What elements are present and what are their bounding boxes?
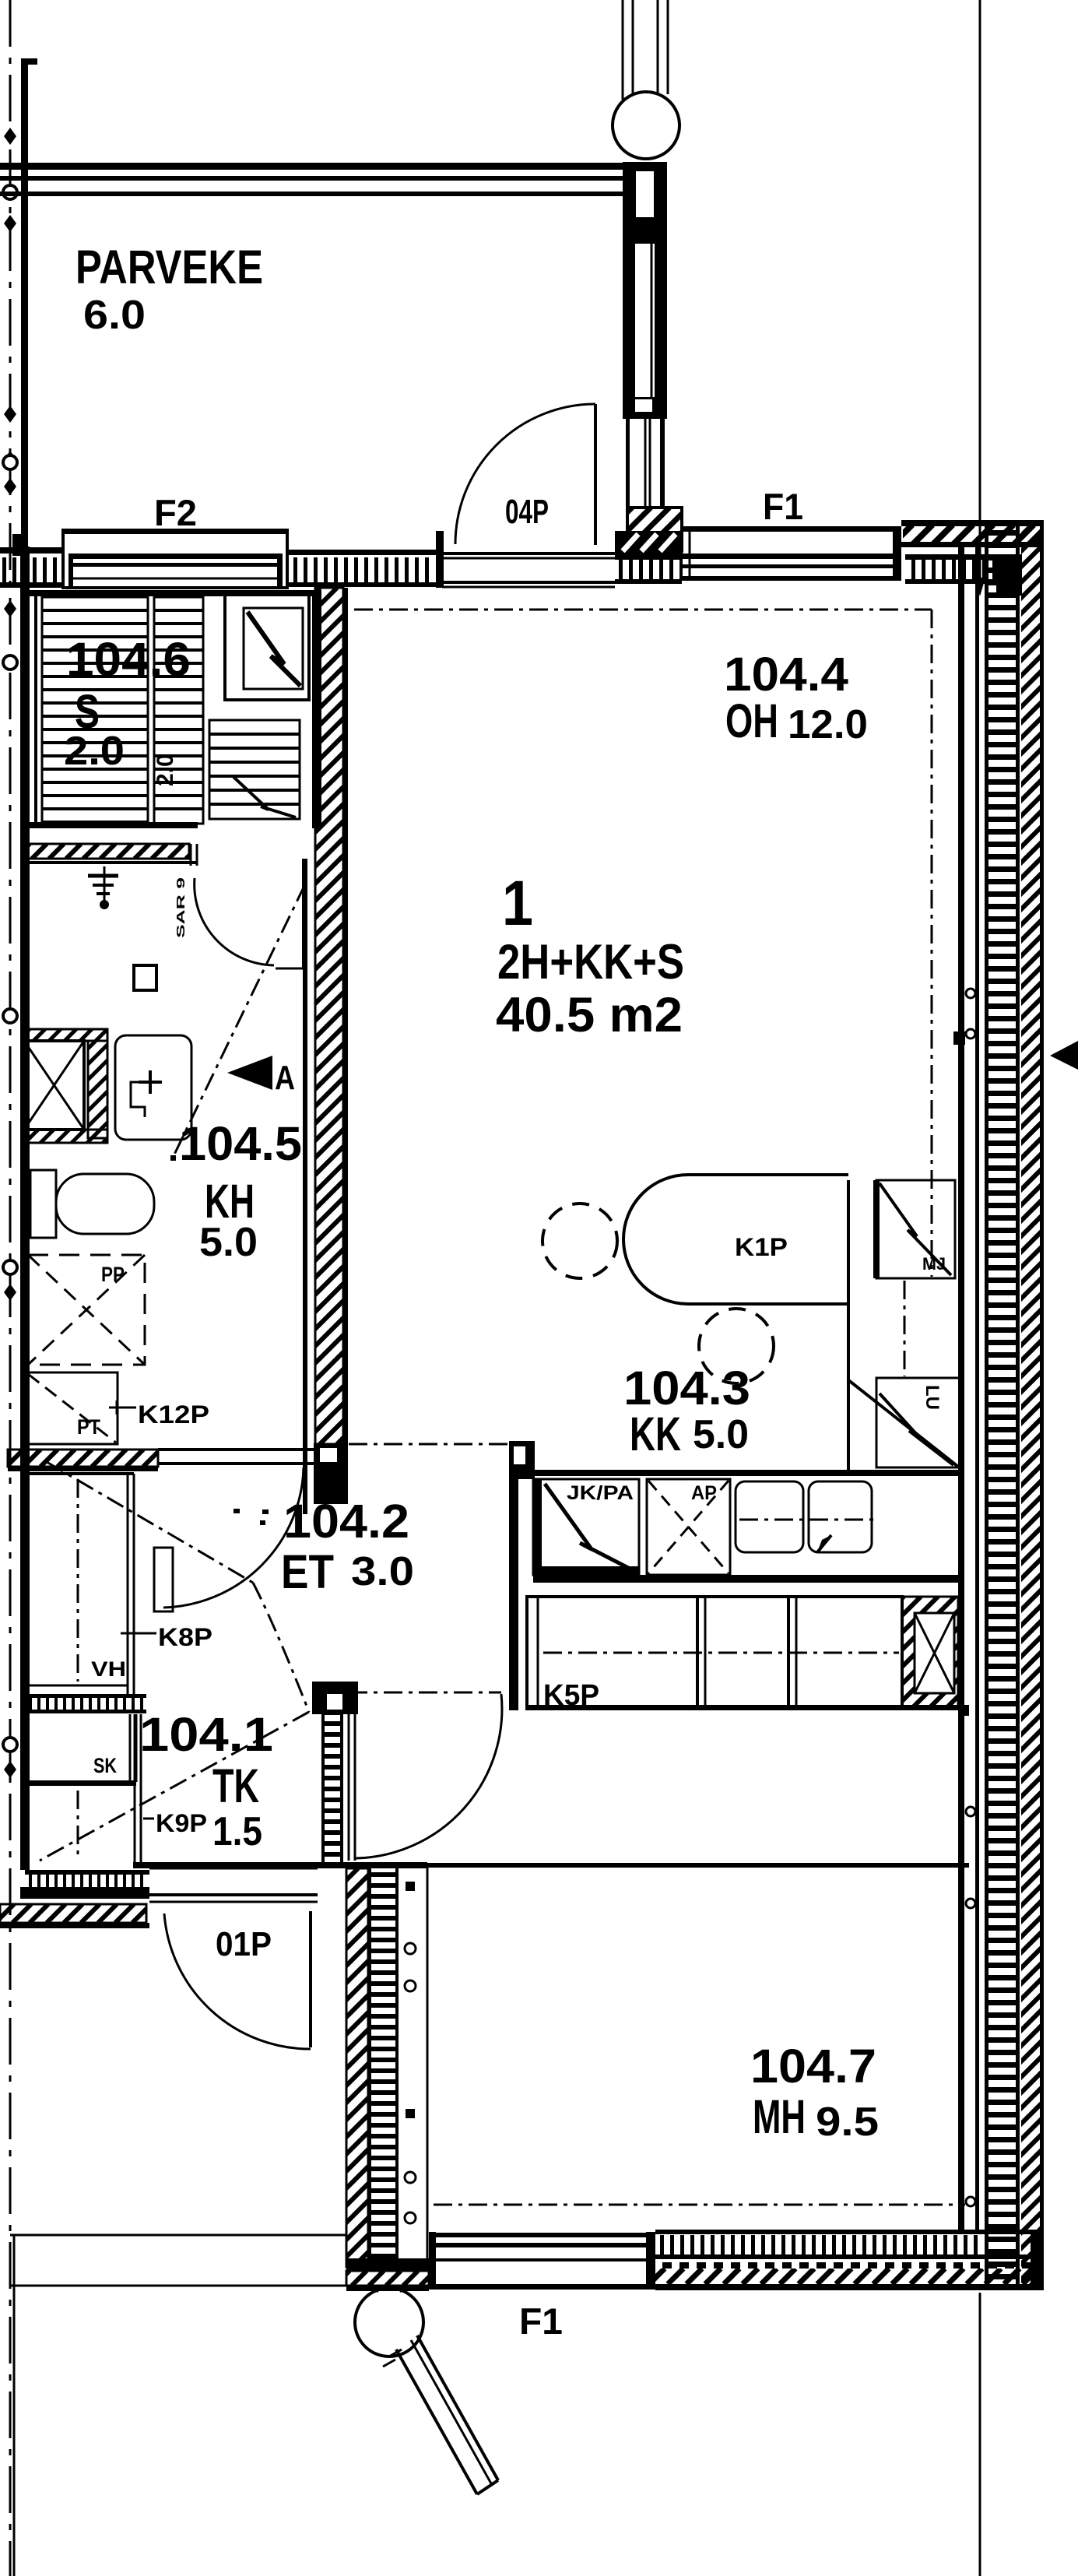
svg-text:MH: MH (753, 2090, 806, 2143)
svg-text:40.5 m2: 40.5 m2 (496, 988, 683, 1042)
svg-text:1.5: 1.5 (212, 1809, 262, 1854)
svg-text:K1P: K1P (735, 1233, 788, 1261)
svg-text:5.0: 5.0 (199, 1220, 258, 1265)
svg-text:ET: ET (281, 1545, 334, 1598)
svg-text:104.1: 104.1 (139, 1708, 273, 1761)
svg-text:SAR 9: SAR 9 (174, 877, 188, 938)
svg-text:104.4: 104.4 (724, 648, 848, 701)
svg-text:F1: F1 (763, 486, 803, 527)
svg-text:104.3: 104.3 (623, 1362, 750, 1415)
svg-text:F1: F1 (519, 2300, 563, 2342)
svg-text:5.0: 5.0 (693, 1412, 749, 1457)
svg-text:AP: AP (691, 1482, 717, 1504)
svg-text:9.5: 9.5 (816, 2100, 879, 2145)
svg-text:1: 1 (502, 868, 533, 939)
svg-text:TK: TK (212, 1759, 259, 1812)
svg-text:KK: KK (630, 1407, 681, 1460)
svg-text:2.0: 2.0 (153, 754, 178, 786)
svg-text:01P: 01P (216, 1925, 272, 1963)
svg-text:A: A (275, 1059, 295, 1097)
svg-text:LU: LU (922, 1385, 943, 1410)
svg-text:K12P: K12P (138, 1400, 209, 1429)
svg-text:104.5: 104.5 (179, 1117, 302, 1170)
svg-text:F2: F2 (154, 492, 197, 533)
svg-text:PP: PP (101, 1263, 125, 1286)
svg-text:12.0: 12.0 (788, 702, 868, 747)
svg-text:SK: SK (93, 1754, 117, 1777)
svg-text:VH: VH (91, 1657, 126, 1681)
svg-text:3.0: 3.0 (351, 1549, 414, 1594)
svg-text:JK/PA: JK/PA (567, 1482, 634, 1504)
svg-text:K8P: K8P (158, 1623, 212, 1651)
svg-text:104.7: 104.7 (750, 2040, 876, 2093)
svg-text:2H+KK+S: 2H+KK+S (497, 935, 684, 989)
svg-text:2.0: 2.0 (64, 729, 125, 774)
svg-text:OH: OH (725, 694, 778, 747)
svg-text:104.6: 104.6 (66, 633, 191, 686)
svg-text:PARVEKE: PARVEKE (75, 241, 263, 293)
svg-text:K9P: K9P (156, 1809, 207, 1837)
svg-text:PT: PT (77, 1415, 100, 1439)
svg-text:104.2: 104.2 (283, 1495, 409, 1548)
svg-text:04P: 04P (505, 493, 549, 531)
svg-text:MJ: MJ (922, 1254, 946, 1274)
svg-text:6.0: 6.0 (83, 293, 146, 338)
